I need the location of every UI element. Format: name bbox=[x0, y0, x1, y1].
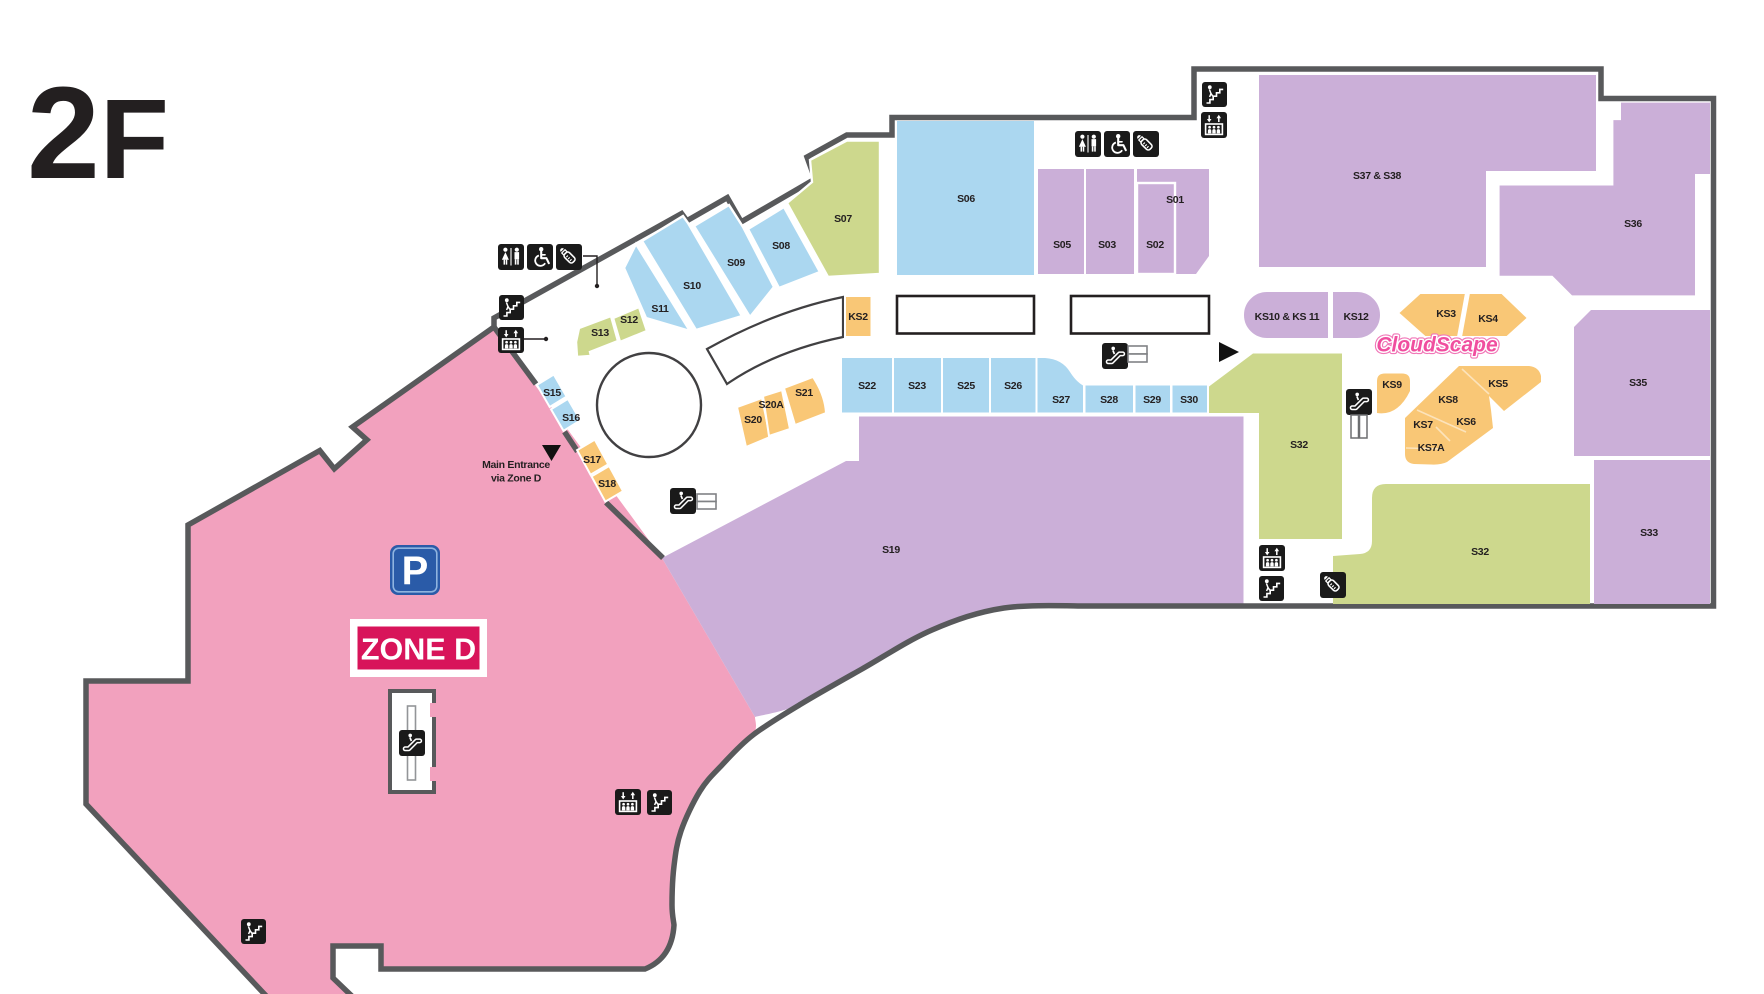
svg-text:2F: 2F bbox=[27, 59, 169, 206]
svg-text:S23: S23 bbox=[908, 380, 926, 392]
svg-text:S11: S11 bbox=[651, 303, 669, 315]
svg-text:S29: S29 bbox=[1143, 394, 1161, 406]
svg-text:S33: S33 bbox=[1640, 527, 1658, 539]
svg-text:S22: S22 bbox=[858, 380, 876, 392]
svg-text:S07: S07 bbox=[834, 213, 852, 225]
svg-text:S05: S05 bbox=[1053, 239, 1071, 251]
svg-text:S28: S28 bbox=[1100, 394, 1118, 406]
svg-text:CloudScape: CloudScape bbox=[1376, 334, 1498, 357]
svg-text:KS8: KS8 bbox=[1438, 394, 1458, 406]
svg-text:S08: S08 bbox=[772, 240, 790, 252]
svg-text:KS4: KS4 bbox=[1478, 313, 1498, 325]
svg-text:via Zone D: via Zone D bbox=[491, 473, 542, 485]
svg-text:KS2: KS2 bbox=[848, 311, 868, 323]
svg-text:S01: S01 bbox=[1166, 194, 1184, 206]
svg-text:KS5: KS5 bbox=[1488, 378, 1508, 390]
svg-text:S36: S36 bbox=[1624, 218, 1642, 230]
svg-text:S06: S06 bbox=[957, 193, 975, 205]
svg-text:S10: S10 bbox=[683, 280, 701, 292]
svg-text:S02: S02 bbox=[1146, 239, 1164, 251]
svg-text:S32: S32 bbox=[1290, 439, 1308, 451]
svg-text:S21: S21 bbox=[795, 387, 813, 399]
svg-text:S25: S25 bbox=[957, 380, 975, 392]
svg-text:S18: S18 bbox=[598, 478, 616, 490]
svg-text:KS9: KS9 bbox=[1382, 379, 1402, 391]
svg-text:S17: S17 bbox=[583, 454, 601, 466]
svg-text:S27: S27 bbox=[1052, 394, 1070, 406]
svg-text:S03: S03 bbox=[1098, 239, 1116, 251]
svg-text:S20: S20 bbox=[744, 414, 762, 426]
svg-text:S20A: S20A bbox=[758, 399, 784, 411]
svg-text:S19: S19 bbox=[882, 544, 900, 556]
svg-text:KS7: KS7 bbox=[1413, 419, 1433, 431]
svg-text:S16: S16 bbox=[562, 412, 580, 424]
svg-text:KS7A: KS7A bbox=[1418, 442, 1446, 454]
svg-text:S26: S26 bbox=[1004, 380, 1022, 392]
svg-text:S15: S15 bbox=[543, 387, 561, 399]
svg-text:S30: S30 bbox=[1180, 394, 1198, 406]
svg-text:S32: S32 bbox=[1471, 546, 1489, 558]
svg-text:KS3: KS3 bbox=[1436, 308, 1456, 320]
svg-text:S37 & S38: S37 & S38 bbox=[1353, 170, 1402, 182]
svg-text:KS10 & KS 11: KS10 & KS 11 bbox=[1255, 311, 1320, 323]
svg-text:S09: S09 bbox=[727, 257, 745, 269]
svg-text:S12: S12 bbox=[620, 314, 638, 326]
svg-text:S13: S13 bbox=[591, 327, 609, 339]
svg-text:KS12: KS12 bbox=[1343, 311, 1369, 323]
svg-text:ZONE D: ZONE D bbox=[361, 633, 476, 667]
svg-text:Main Entrance: Main Entrance bbox=[482, 459, 550, 471]
svg-text:KS6: KS6 bbox=[1456, 416, 1476, 428]
svg-text:P: P bbox=[402, 549, 429, 593]
svg-text:S35: S35 bbox=[1629, 377, 1647, 389]
